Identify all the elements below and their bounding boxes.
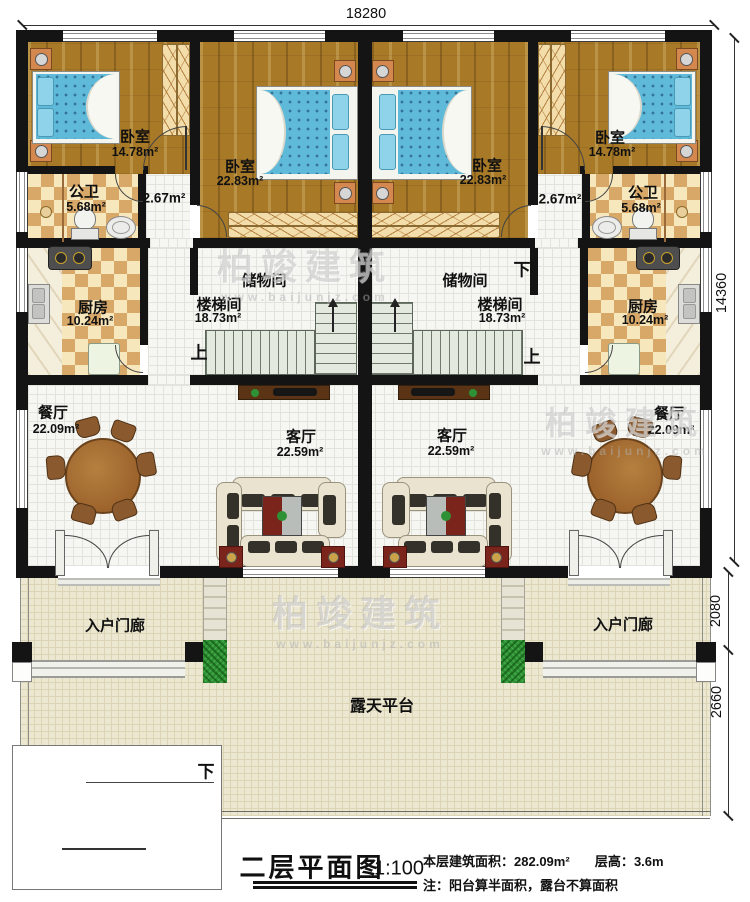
unit-left [16,30,358,690]
window [700,248,712,312]
entry-door-leaf [149,530,159,576]
wall-mid-b [370,238,535,248]
room-area-living-left: 22.59m² [277,445,324,459]
side-table [383,546,407,568]
dining-chair [45,455,66,481]
dim-right-porch: 2080 [708,595,724,627]
wall-left [16,30,28,172]
corridor-patch [538,375,580,385]
side-table [485,546,509,568]
wall-stair-bottom [190,375,358,385]
wardrobe [370,212,500,238]
room-label-storage-right: 储物间 [442,270,487,291]
wall-left [16,232,28,248]
room-area-bedroom-big-right: 22.83m² [460,173,507,187]
room-label-living-right: 客厅 [437,425,467,446]
window [16,172,28,232]
wall-storage-stub [190,248,198,295]
page-title: 二层平面图 [239,848,384,885]
side-table [321,546,345,568]
kitchen-sink [28,284,50,324]
page-scale: 1:100 [374,858,424,881]
pillow [37,108,54,137]
bath-divider [62,174,64,242]
wall-left [16,508,28,566]
armchair [382,482,410,538]
room-area-living-right: 22.59m² [428,444,475,458]
tv-cabinet [238,385,330,400]
room-label-bedroom-small-left: 卧室 [120,126,150,147]
wall-left [16,312,28,410]
stair-arrow-head [390,298,400,307]
wall-left [700,508,712,566]
room-label-bath-right: 公卫 [628,182,658,203]
title-underline [253,886,417,889]
porch-walkway [501,578,525,642]
entry-door-leaf [569,530,579,576]
wardrobe [228,212,358,238]
wall-left [700,232,712,248]
title-notes: 本层建筑面积：282.09m² 层高：3.6m 注：阳台算半面积，露台不算面积 [423,851,743,894]
porch-walkway [203,578,227,642]
unit-right [370,30,712,690]
build-area-value: 282.09m² [514,854,570,869]
floor-height-value: 3.6m [634,854,664,869]
room-area-bath-left: 5.68m² [66,200,106,214]
armchair [318,482,346,538]
wall-kitchen-right [140,248,148,345]
wall-bath-top [613,166,700,174]
room-area-bedroom-big-left: 22.83m² [217,174,264,188]
room-area-dining-right: 22.09m² [648,423,695,437]
window [700,410,712,508]
tv-cabinet [398,385,490,400]
door-threshold [58,578,160,586]
stair-landing [315,302,357,375]
wall-kitchen-right [580,248,588,345]
pillow [674,77,691,106]
window [63,30,157,42]
hall-area-left: 2.67m² [143,191,186,206]
sofa-bottom [240,535,330,567]
stair-arrow-line [332,306,334,332]
stair-landing [371,302,413,375]
pillow [379,134,396,170]
porch-column [696,642,716,662]
window [700,172,712,232]
window [234,30,325,42]
dining-chair [661,455,682,481]
nightstand [334,182,356,204]
tv [273,388,317,396]
floor-drain [40,206,52,218]
room-label-terrace: 露天平台 [350,692,414,716]
room-label-storage-left: 储物间 [241,270,286,291]
sofa-bottom [398,535,488,567]
porch-column [525,642,543,662]
porch-column [12,642,32,662]
plant [469,389,477,397]
wall-kitchen-bottom [580,375,700,385]
pillow [332,94,349,130]
room-area-bedroom-small-right: 14.78m² [589,145,636,159]
stair-flight [413,330,523,375]
wall-mid-b [193,238,358,248]
porch-railing [32,660,185,678]
party-wall [358,30,372,578]
wall-left [700,30,712,172]
nightstand [372,60,394,82]
build-area-label: 本层建筑面积： [423,854,514,869]
wall-top [370,30,403,42]
nightstand [30,48,52,70]
porch-planter [203,640,227,683]
title-block: 二层平面图 1:100 本层建筑面积：282.09m² 层高：3.6m 注：阳台… [0,845,750,902]
pillow [379,94,396,130]
entry-door-leaf [663,530,673,576]
dim-line-right-lower [728,572,729,816]
closet [162,44,190,136]
stair-down-right: 下 [514,256,531,281]
wall-bedrooms [528,42,538,205]
wall-bath-top [28,166,115,174]
coffee-table [262,496,302,536]
exterior-stair-down: 下 [198,758,215,783]
stair-up-right: 上 [524,343,541,368]
porch-column [185,642,203,662]
kitchen-sink [678,284,700,324]
dim-line-right-main [734,38,735,562]
porch-column-base [12,662,32,682]
room-label-dining-right: 餐厅 [654,403,684,424]
nightstand [334,60,356,82]
coffee-table [426,496,466,536]
stair-arrow-line [394,306,396,332]
entry-door-leaf [55,530,65,576]
wall-top [494,30,571,42]
nightstand [676,48,698,70]
plant [251,389,259,397]
hall-patch [535,238,578,248]
door-threshold [568,578,670,586]
room-label-dining-left: 餐厅 [38,402,68,423]
closet [538,44,566,136]
corridor-patch [148,375,190,385]
floor-height-label: 层高： [595,854,634,869]
hall-area-right: 2.67m² [539,192,582,207]
porch-railing [543,660,696,678]
pillow [674,108,691,137]
bath-divider [664,174,666,242]
room-area-kitchen-left: 10.24m² [67,314,114,328]
toilet-tank [71,228,99,240]
pillow [37,77,54,106]
room-area-bath-right: 5.68m² [621,201,661,215]
wall-bottom [16,566,58,578]
room-label-porch-left: 入户门廊 [85,615,145,636]
wall-storage-stub [530,248,538,295]
wall-left [700,312,712,410]
stair-flight [205,330,315,375]
plant [441,511,451,521]
porch-column-base [696,662,716,682]
window [16,410,28,508]
wall-bedrooms [190,42,200,205]
side-table [219,546,243,568]
wall-top [157,30,234,42]
room-label-living-left: 客厅 [286,426,316,447]
stair-arrow-head [328,298,338,307]
window [403,30,494,42]
plant [277,511,287,521]
room-area-stair-left: 18.73m² [195,311,242,325]
room-area-dining-left: 22.09m² [33,422,80,436]
floor-plan: 18280 14360 2080 2660 卧室 14.78m² 卧室 22.8… [0,0,750,902]
build-area-line: 本层建筑面积：282.09m² 层高：3.6m [423,851,743,870]
porch-planter [501,640,525,683]
room-area-stair-right: 18.73m² [479,311,526,325]
tv [411,388,455,396]
room-area-bedroom-small-left: 14.78m² [112,145,159,159]
hall-floor [146,174,190,248]
window [16,248,28,312]
wall-kitchen-bottom [28,375,148,385]
floor-drain [676,206,688,218]
door-leaf [541,126,543,170]
nightstand [372,182,394,204]
bath-sink [592,216,622,239]
pillow [332,134,349,170]
room-label-bath-left: 公卫 [69,181,99,202]
room-area-kitchen-right: 10.24m² [622,313,669,327]
room-label-porch-right: 入户门廊 [593,614,653,635]
dim-top-width: 18280 [346,6,386,22]
toilet-tank [629,228,657,240]
dim-line-top [22,25,714,26]
hall-patch [150,238,193,248]
window [571,30,665,42]
wall-bottom [670,566,712,578]
bath-sink [106,216,136,239]
hall-floor [538,174,582,248]
dim-right-main: 14360 [714,273,730,313]
stair-up-left: 上 [191,339,208,364]
stove [636,246,680,270]
exterior-stair-rail-line [86,782,214,783]
door-leaf [185,126,187,170]
wall-top [325,30,358,42]
stove [48,246,92,270]
note-line: 注：阳台算半面积，露台不算面积 [423,875,743,894]
wall-stair-bottom [370,375,538,385]
dim-right-terrace: 2660 [709,686,725,718]
